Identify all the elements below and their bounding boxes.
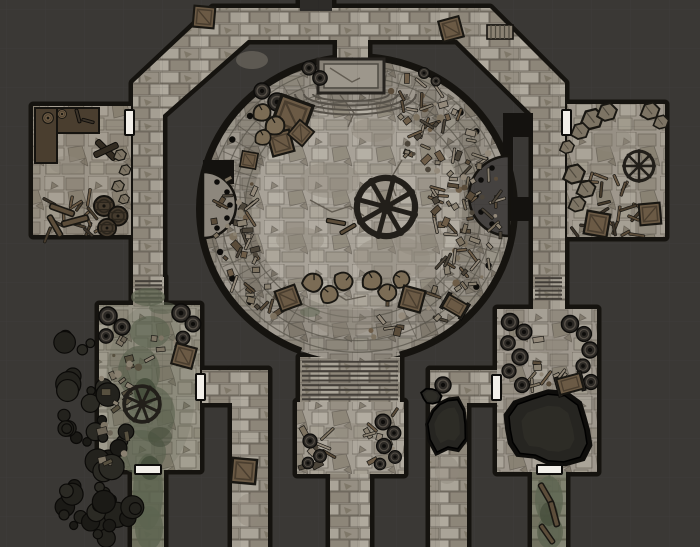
debris [468, 282, 477, 286]
debris [461, 174, 467, 180]
coil-prop [501, 336, 515, 350]
vine-overgrowth [103, 519, 116, 532]
coil-prop [99, 329, 113, 343]
debris [392, 447, 395, 450]
moss-patch [300, 307, 320, 317]
floor-stain [236, 494, 260, 526]
floor-stain [435, 456, 459, 484]
debris [236, 199, 242, 205]
debris [264, 284, 271, 289]
door-bottom-left-south[interactable] [135, 465, 161, 474]
crate-prop [639, 203, 662, 226]
floor-stain [334, 423, 366, 441]
crate-prop [171, 343, 197, 369]
vine-overgrowth [57, 380, 79, 402]
coil-prop [114, 319, 130, 335]
debris [404, 150, 409, 154]
debris [99, 376, 104, 381]
debris [539, 372, 543, 376]
floor-stain [300, 162, 360, 198]
debris [413, 114, 420, 121]
debris [246, 234, 251, 239]
debris [435, 161, 440, 165]
debris [371, 334, 376, 339]
debris [156, 347, 165, 352]
debris [426, 306, 430, 310]
debris [225, 224, 230, 229]
coil-prop [502, 314, 519, 331]
debris [252, 267, 259, 272]
crate-prop [193, 6, 216, 29]
debris [494, 177, 498, 181]
debris [242, 228, 253, 233]
sack-prop [363, 271, 382, 289]
debris [121, 450, 128, 457]
floor-stain [315, 304, 375, 336]
sack-prop [254, 104, 271, 121]
vine-overgrowth [54, 332, 76, 354]
coil-prop [302, 457, 314, 469]
debris [461, 185, 467, 191]
vine-overgrowth [87, 387, 95, 395]
debris [151, 335, 157, 341]
pit-large-inner [522, 406, 575, 452]
door-bottom-right-west[interactable] [492, 375, 501, 400]
sack-prop [255, 130, 270, 145]
coil-prop [387, 426, 401, 440]
coil-prop [576, 359, 590, 373]
debris [233, 232, 237, 236]
vine-overgrowth [62, 424, 72, 434]
vine-overgrowth [92, 490, 115, 513]
coil-prop [99, 307, 117, 325]
coil-prop [185, 316, 201, 332]
debris [398, 312, 405, 319]
debris [241, 251, 248, 258]
debris [467, 216, 474, 220]
dungeon-map [0, 0, 700, 547]
coil-prop [419, 68, 430, 79]
debris [237, 209, 244, 216]
coil-prop [502, 364, 516, 378]
broken-wheel [622, 149, 656, 183]
pallet-prop [487, 25, 513, 39]
debris [393, 327, 402, 337]
coil-prop [582, 342, 598, 358]
debris [135, 364, 142, 371]
vine-overgrowth [59, 510, 69, 520]
crate-prop [231, 458, 257, 484]
debris [534, 364, 542, 371]
floor-stain [351, 118, 395, 142]
floor-stain [276, 227, 324, 253]
debris [159, 335, 164, 340]
debris [487, 168, 490, 182]
crate-prop [399, 286, 426, 313]
debris [480, 195, 485, 200]
debris [533, 336, 544, 343]
dungeon-map-canvas [0, 0, 700, 547]
coil-prop [313, 71, 327, 85]
debris [102, 389, 111, 396]
debris [438, 194, 449, 198]
coilb-prop [43, 113, 54, 124]
door-top-right-room[interactable] [562, 110, 571, 135]
debris [425, 167, 431, 173]
coil-prop [516, 324, 532, 340]
crate-prop [240, 151, 258, 169]
coil-prop [302, 61, 316, 75]
barrel-prop [98, 219, 116, 237]
debris [444, 233, 458, 237]
debris [493, 214, 497, 218]
crate-prop [438, 16, 464, 42]
debris [470, 210, 475, 215]
coil-prop [377, 439, 392, 454]
coil-prop [435, 377, 451, 393]
debris [107, 430, 113, 436]
coil-prop [314, 450, 327, 463]
debris [222, 194, 233, 197]
coil-prop [515, 378, 530, 393]
debris [404, 73, 409, 83]
debris [369, 328, 374, 333]
vine-overgrowth [129, 503, 141, 515]
debris [434, 168, 440, 174]
debris [250, 182, 254, 186]
debris [211, 218, 218, 225]
coil-prop [431, 76, 441, 86]
coil-prop [374, 458, 386, 470]
door-bottom-right-south[interactable] [537, 465, 562, 474]
vine-overgrowth [58, 409, 70, 421]
floor-stain [592, 128, 632, 152]
debris [246, 293, 254, 296]
debris [499, 232, 502, 239]
coil-prop [562, 316, 579, 333]
door-top-left-room[interactable] [125, 110, 134, 135]
debris [126, 361, 133, 368]
debris [477, 163, 483, 170]
debris [449, 177, 457, 181]
debris [388, 88, 394, 94]
debris [270, 313, 277, 320]
debris [546, 381, 551, 386]
coilb-prop [58, 110, 67, 119]
coil-prop [254, 83, 270, 99]
vine-overgrowth [60, 484, 74, 498]
debris [485, 150, 492, 157]
debris [434, 103, 437, 106]
crate-prop [584, 211, 611, 238]
coil-prop [303, 434, 317, 448]
debris [405, 141, 411, 147]
coil-prop [577, 327, 592, 342]
coil-prop [512, 349, 528, 365]
floor-stain [236, 51, 268, 69]
debris [114, 370, 122, 378]
door-bottom-left-east[interactable] [196, 374, 205, 400]
vine-overgrowth [77, 345, 87, 355]
coil-prop [389, 451, 402, 464]
coil-prop [375, 414, 391, 430]
debris [412, 152, 416, 156]
vine-overgrowth [86, 339, 95, 348]
vine-overgrowth [93, 530, 102, 539]
debris [480, 275, 483, 278]
debris [112, 354, 115, 357]
